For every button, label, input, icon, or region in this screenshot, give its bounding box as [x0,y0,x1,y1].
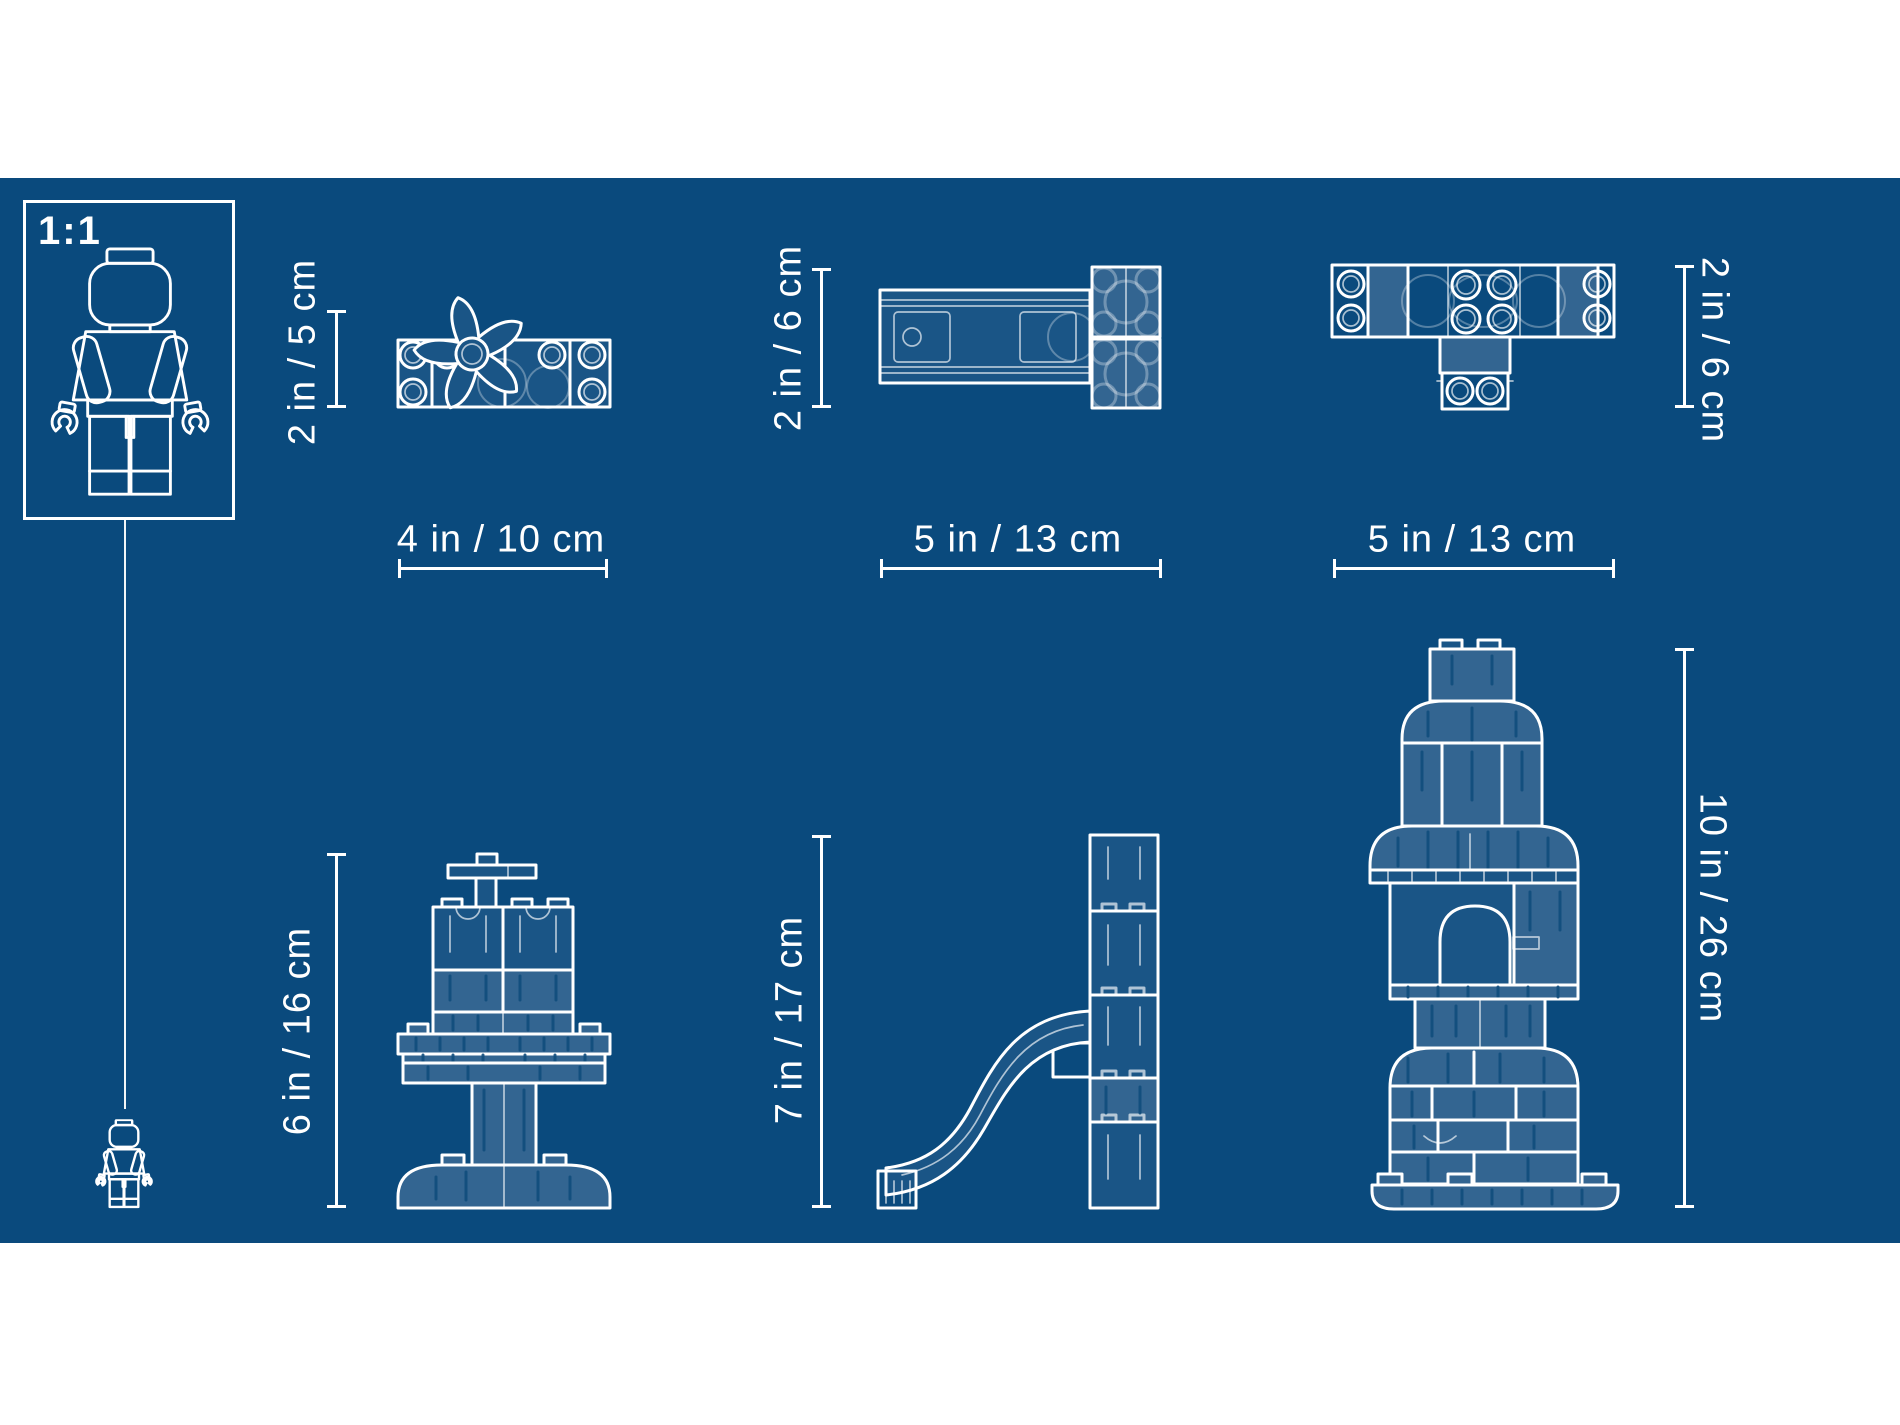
width-label-t-shaped-assembly: 5 in / 13 cm [1368,519,1576,562]
width-dimension-line-flower-plate [398,567,608,570]
width-dimension-line-t-shaped-assembly [1333,567,1615,570]
height-label-rocket-tower: 10 in / 26 cm [1691,793,1734,1024]
height-label-flower-plate: 2 in / 5 cm [282,259,325,445]
scale-reference-box: 1:1 [23,200,235,520]
height-label-pedestal-table: 6 in / 16 cm [277,927,320,1135]
minifigure-small-icon [95,1119,153,1209]
model-rectangular-brick-drawing [876,262,1166,412]
height-label-rectangular-brick: 2 in / 6 cm [768,245,811,431]
height-dimension-line-rectangular-brick [820,268,823,408]
minifigure-outline-icon [48,247,212,499]
model-pedestal-table-drawing [398,852,610,1209]
height-label-slide: 7 in / 17 cm [769,916,812,1124]
scale-string-line [124,519,126,1109]
model-flower-plate-drawing [390,288,620,414]
blueprint-page: 1:1 2 in / 5 cm 4 in / 10 cm [0,0,1900,1425]
height-dimension-line-slide [820,835,823,1208]
width-label-flower-plate: 4 in / 10 cm [397,519,605,562]
height-dimension-line-flower-plate [335,310,338,408]
model-rocket-tower-drawing [1368,640,1622,1209]
model-t-shaped-assembly-drawing [1330,263,1618,411]
height-dimension-line-t-shaped-assembly [1683,265,1686,408]
height-dimension-line-rocket-tower [1683,648,1686,1208]
model-slide-drawing [878,835,1160,1209]
height-label-t-shaped-assembly: 2 in / 6 cm [1693,257,1736,443]
height-dimension-line-pedestal-table [335,853,338,1208]
width-dimension-line-rectangular-brick [880,567,1162,570]
width-label-rectangular-brick: 5 in / 13 cm [914,519,1122,562]
